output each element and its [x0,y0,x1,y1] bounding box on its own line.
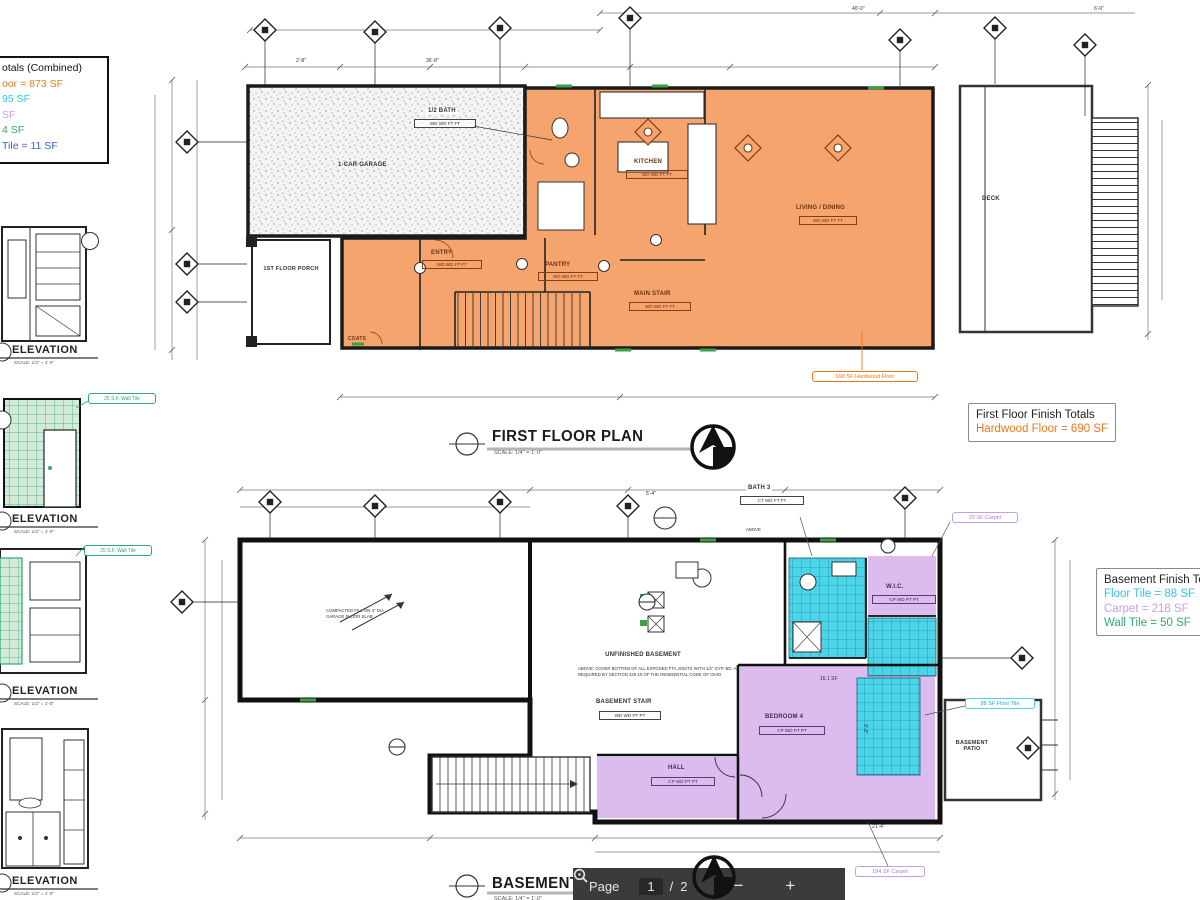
finish-codes-entry: WD WD FT FT [422,260,482,269]
wall-tile-25sf-tag-2: 25 S.F. Wall Tile [84,545,152,556]
basement-finish-totals-box: Basement Finish Totals Floor Tile = 88 S… [1096,568,1200,636]
elevation-scale-2: SCALE: 1/2" = 1'-0" [14,529,54,534]
combined-floor-tile-total: 95 SF [2,92,82,108]
dim-basement-bottom: 21'-4" [872,824,885,830]
dim-shower: 9'-2" [862,724,868,734]
room-label-deck: DECK [982,196,1000,202]
elevation-scale-1: SCALE: 1/2" = 1'-0" [14,360,54,365]
basement-totals-title: Basement Finish Totals [1104,573,1200,587]
bath3-above-note: ABOVE [746,527,761,533]
page-separator: / [670,879,674,894]
room-label-half-bath: 1/2 BATH [426,108,458,114]
combined-hardwood-total: oor = 873 SF [2,77,82,93]
room-label-coats: COATS [348,336,366,342]
finish-codes-half-bath: WD WD FT FT [414,119,476,128]
room-label-unfinished-basement: UNFINISHED BASEMENT [604,652,682,658]
plan-linework [0,0,1200,900]
floor-tile-88sf-tag: 88 SF Floor Tile [965,698,1035,709]
room-label-porch: 1ST FLOOR PORCH [262,266,320,272]
room-label-pantry: PANTRY [545,262,570,268]
elevation-title-1: ELEVATION [12,344,78,356]
room-label-living-dining: LIVING / DINING [796,205,845,211]
elevation-scale-4: SCALE: 1/2" = 1'-0" [14,891,54,896]
room-label-hall: HALL [668,765,685,771]
combined-finish-totals-box: otals (Combined) oor = 873 SF 95 SF SF 4… [0,56,109,164]
page-label: Page [589,879,619,894]
basement-carpet-total: Carpet = 218 SF [1104,602,1200,616]
dim-basement-top: 5'-4" [646,491,656,497]
finish-codes-living: WD WD FT FT [799,216,857,225]
basement-plan [171,487,1070,897]
dim-bedroom-area: 16.1 SF [820,676,838,682]
elevation-title-4: ELEVATION [12,875,78,887]
room-label-main-stair: MAIN STAIR [634,291,671,297]
room-label-kitchen: KITCHEN [634,159,662,165]
room-label-basement-stair: BASEMENT STAIR [596,699,652,705]
page-number-input[interactable]: 1 [639,878,662,895]
drawing-sheet: otals (Combined) oor = 873 SF 95 SF SF 4… [0,0,1200,900]
basement-plan-scale: SCALE: 1/4" = 1'-0" [494,896,542,900]
basement-wall-tile-total: Wall Tile = 50 SF [1104,616,1200,630]
dim-top-left: 2'-8" [296,58,306,64]
wall-tile-25sf-tag-1: 25 S.F. Wall Tile [88,393,156,404]
finish-codes-bath3: CT WD FT FT [740,496,804,505]
zoom-in-button[interactable]: + [785,876,795,896]
elevation-drawings [0,227,99,892]
basement-floor-tile-total: Floor Tile = 88 SF [1104,587,1200,601]
room-label-bedroom4: BEDROOM 4 [765,714,803,720]
first-floor-finish-totals-box: First Floor Finish Totals Hardwood Floor… [968,403,1116,442]
room-label-entry: ENTRY [431,250,452,256]
finish-codes-main-stair: WD WD FT FT [629,302,691,311]
elevation-scale-3: SCALE: 1/2" = 1'-0" [14,701,54,706]
finish-codes-hall: CP WD PT PT [651,777,715,786]
dim-top-mid: 36'-8" [426,58,439,64]
north-arrow-icon [692,425,734,468]
finish-codes-kitchen: WD WD FT FT [626,170,688,179]
page-total: 2 [680,879,687,894]
finish-codes-wic: CP WD PT PT [872,595,936,604]
first-floor-totals-title: First Floor Finish Totals [976,408,1108,422]
carpet-20sf-tag: 20 SF Carpet [952,512,1018,523]
room-label-basement-patio: BASEMENT PATIO [948,740,996,752]
elevation-title-3: ELEVATION [12,685,78,697]
first-floor-hardwood-total: Hardwood Floor = 690 SF [976,422,1108,436]
room-label-bath3: BATH 3 [746,485,772,491]
combined-carpet-total: SF [2,108,82,124]
slab-note: COMPACTED FILL ON 4" DIA GARAGE FLOOR SL… [326,608,396,619]
joist-note: ABOVE: COVER BOTTOM OF ALL EXPOSED FTA J… [578,666,760,677]
first-floor-plan-title: FIRST FLOOR PLAN [492,428,643,446]
combined-totals-title: otals (Combined) [2,61,82,77]
carpet-194sf-tag: 194 SF Carpet [855,866,925,877]
first-floor-plan [155,7,1162,468]
room-label-garage: 1-CAR GARAGE [338,162,387,168]
north-arrow-icon-basement [688,851,740,900]
dim-deck: 6'-0" [1094,6,1104,12]
finish-codes-bedroom4: CP WD PT PT [759,726,825,735]
combined-other-tile-total: Tile = 11 SF [2,139,82,155]
finish-codes-basement-stair: WD WD PT PT [599,711,661,720]
first-floor-plan-scale: SCALE: 1/4" = 1'-0" [494,450,542,456]
finish-codes-pantry: WD WD FT FT [538,272,598,281]
dim-top-right: 40'-0" [852,6,865,12]
combined-wall-tile-total: 4 SF [2,123,82,139]
room-label-wic: W.I.C. [886,584,904,590]
elevation-title-2: ELEVATION [12,513,78,525]
hardwood-area-tag: 690 SF Hardwood Floor [812,371,918,382]
